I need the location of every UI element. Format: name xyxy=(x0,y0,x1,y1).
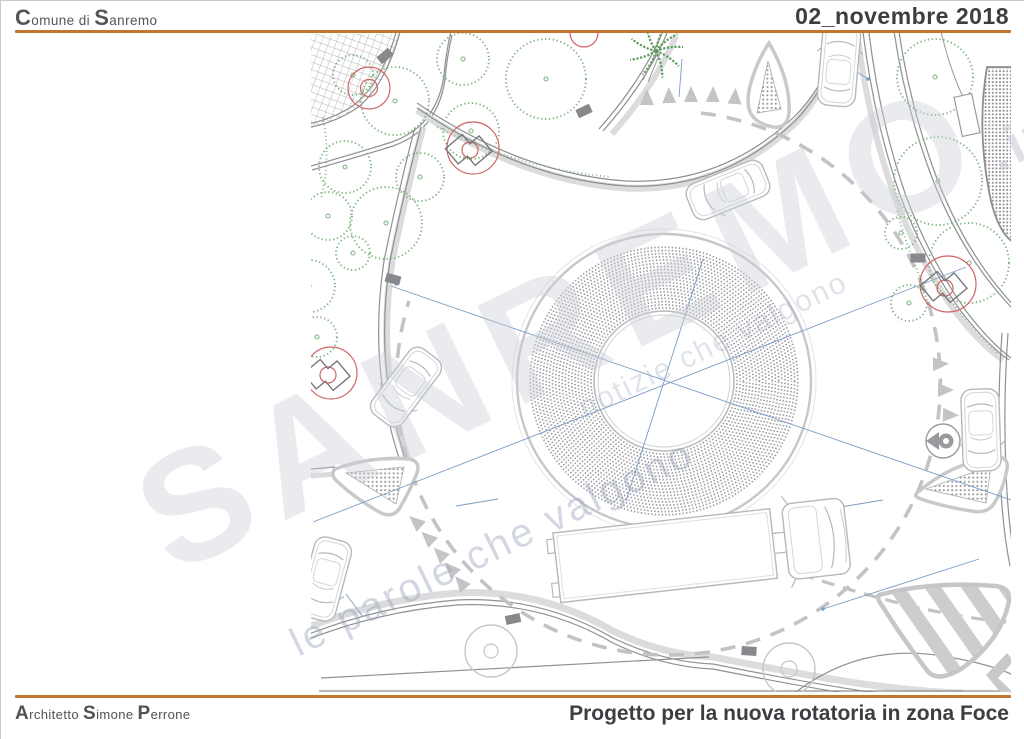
brand-initial-s: S xyxy=(94,5,109,30)
zebra-island-southeast xyxy=(878,585,1009,677)
date-label: 02_novembre 2018 xyxy=(795,3,1009,30)
hatched-pond-area xyxy=(982,67,1013,242)
traffic-island-north xyxy=(748,43,789,127)
header-rule xyxy=(15,30,1011,33)
car-left xyxy=(363,340,449,433)
planter-box xyxy=(954,94,980,137)
car-northeast xyxy=(813,22,866,108)
slide-title: Progetto per la nuova rotatoria in zona … xyxy=(569,702,1009,726)
footer-rule xyxy=(15,695,1011,698)
brand-comune-di-sanremo: Comune di Sanremo xyxy=(15,5,157,31)
plan-svg xyxy=(1,1,1024,739)
paved-park-area xyxy=(311,34,400,128)
car-right xyxy=(957,388,1006,472)
lane-chevron xyxy=(986,653,1014,699)
site-plan-drawing: SANREMO.it le parole che valgono notizie… xyxy=(1,1,1024,739)
keep-right-sign xyxy=(926,424,960,458)
brand-initial-c: C xyxy=(15,5,31,30)
slide-page: SANREMO.it le parole che valgono notizie… xyxy=(0,0,1024,739)
tree-pit-circles xyxy=(465,625,815,695)
traffic-island-west xyxy=(333,458,418,514)
author-label: Architetto Simone Perrone xyxy=(15,703,191,725)
car-top xyxy=(681,153,774,226)
